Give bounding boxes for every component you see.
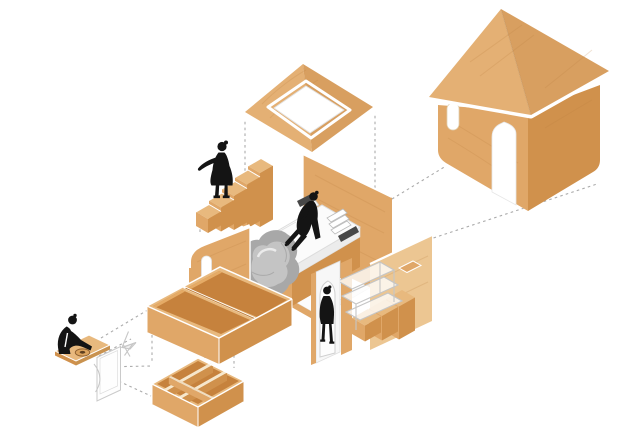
cubby-grid	[152, 358, 244, 427]
figure-standing	[198, 141, 233, 199]
unit-mid-panel	[341, 258, 352, 355]
diagram-canvas	[0, 0, 640, 439]
arch-wall-edge	[311, 272, 316, 365]
roof-skylight-panel	[245, 64, 373, 156]
storage-stairs	[196, 141, 273, 234]
exploded-axonometric-diagram: Axonometric exploded diagram of a micro-…	[0, 0, 640, 439]
house-arched-door	[492, 122, 516, 205]
dash-wall-to-house	[392, 166, 446, 199]
dash-desk-1	[96, 308, 151, 341]
folding-chair-sketch	[122, 332, 136, 357]
fold-out-desk	[55, 314, 136, 401]
house-oval-window	[447, 103, 459, 130]
house-shell	[429, 9, 609, 211]
tray-center	[80, 351, 86, 354]
